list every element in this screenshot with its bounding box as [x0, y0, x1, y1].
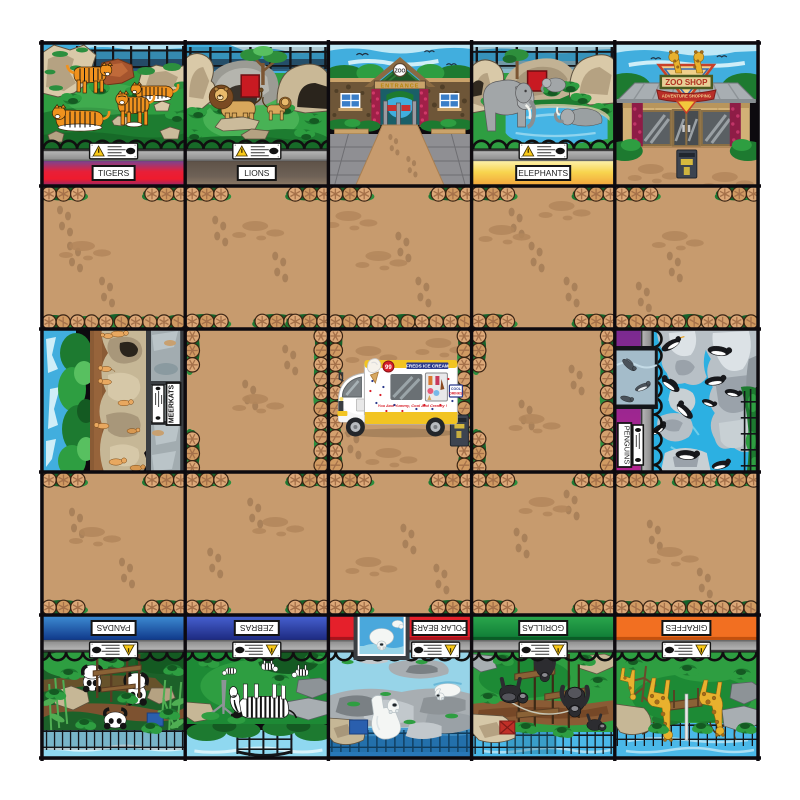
svg-text:PANDAS: PANDAS — [96, 623, 130, 633]
svg-text:GORILLAS: GORILLAS — [522, 623, 564, 633]
svg-text:DRINKS: DRINKS — [449, 392, 463, 396]
svg-text:ELEPHANTS: ELEPHANTS — [518, 168, 568, 178]
svg-text:MEERKATS: MEERKATS — [169, 385, 176, 424]
svg-text:LIONS: LIONS — [244, 168, 270, 178]
svg-text:ZEBRAS: ZEBRAS — [240, 623, 274, 633]
svg-text:ZOO: ZOO — [395, 69, 406, 75]
svg-text:99: 99 — [385, 365, 392, 371]
svg-text:POLAR BEARS: POLAR BEARS — [412, 623, 467, 632]
svg-text:COOL: COOL — [451, 387, 461, 391]
svg-text:TIGERS: TIGERS — [98, 168, 130, 178]
svg-text:ENTRANCE: ENTRANCE — [380, 83, 419, 89]
svg-text:ADVENTURE SHOPPING: ADVENTURE SHOPPING — [662, 94, 711, 99]
svg-text:You And Yummy, Cool And Creamy: You And Yummy, Cool And Creamy ! — [378, 403, 448, 408]
svg-text:ZOO SHOP: ZOO SHOP — [665, 78, 708, 87]
svg-text:GIRAFFES: GIRAFFES — [665, 623, 707, 633]
svg-text:PENGUINS: PENGUINS — [623, 426, 632, 465]
svg-text:FREDS ICE CREAM: FREDS ICE CREAM — [406, 364, 449, 369]
